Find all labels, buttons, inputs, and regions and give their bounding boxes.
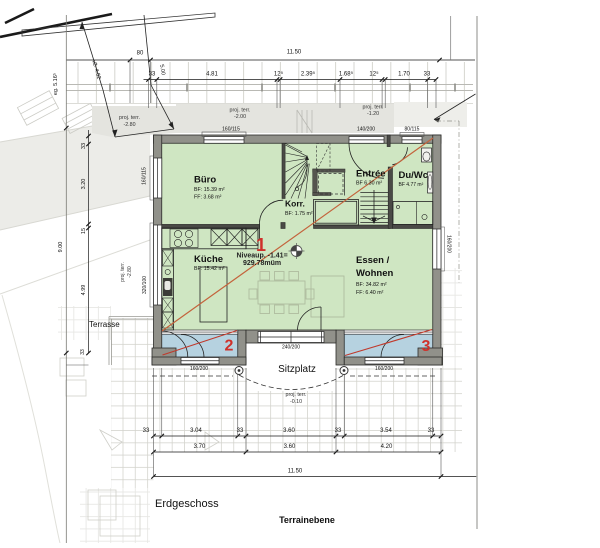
- svg-text:BF 4.77 m²: BF 4.77 m²: [399, 182, 424, 188]
- svg-text:-2.80: -2.80: [123, 122, 135, 128]
- svg-text:140/200: 140/200: [357, 127, 375, 133]
- svg-text:proj. terr.: proj. terr.: [119, 115, 140, 121]
- svg-text:240/200: 240/200: [282, 345, 300, 351]
- svg-text:1.70: 1.70: [398, 72, 410, 78]
- svg-text:Wohnen: Wohnen: [356, 268, 393, 279]
- svg-text:2.39⁵: 2.39⁵: [301, 71, 316, 78]
- svg-text:4.81: 4.81: [206, 72, 218, 78]
- svg-text:160/115: 160/115: [222, 127, 240, 133]
- svg-text:proj. terr.: proj. terr.: [120, 262, 126, 282]
- svg-text:3.54: 3.54: [380, 428, 392, 434]
- svg-text:929.78müm: 929.78müm: [243, 260, 281, 267]
- svg-text:-2.80: -2.80: [127, 266, 133, 278]
- svg-text:11.50: 11.50: [288, 469, 303, 475]
- svg-text:33: 33: [81, 143, 87, 149]
- svg-text:Küche: Küche: [194, 254, 223, 265]
- svg-text:12⁵: 12⁵: [369, 71, 379, 78]
- svg-text:BF: 15.39 m²: BF: 15.39 m²: [194, 187, 225, 193]
- svg-text:-0.10: -0.10: [290, 399, 302, 405]
- svg-text:eg. 5.16⁵: eg. 5.16⁵: [52, 73, 59, 95]
- svg-text:Korr.: Korr.: [285, 199, 305, 209]
- svg-text:Entrée: Entrée: [356, 169, 386, 180]
- svg-text:Erdgeschoss: Erdgeschoss: [155, 498, 219, 510]
- svg-text:80: 80: [137, 51, 144, 57]
- svg-text:proj. terr.: proj. terr.: [363, 105, 384, 111]
- svg-text:33: 33: [424, 72, 431, 78]
- svg-text:3.70: 3.70: [194, 444, 206, 450]
- svg-text:FF: 6.40 m²: FF: 6.40 m²: [356, 290, 384, 296]
- svg-text:1.68⁵: 1.68⁵: [339, 71, 354, 78]
- svg-text:3.60: 3.60: [283, 428, 295, 434]
- svg-text:33: 33: [149, 72, 156, 78]
- svg-text:33: 33: [428, 428, 435, 434]
- svg-text:-1.20: -1.20: [367, 111, 379, 117]
- svg-text:9.00: 9.00: [58, 242, 64, 253]
- svg-text:3.04: 3.04: [190, 428, 202, 434]
- svg-text:12⁵: 12⁵: [274, 71, 284, 78]
- svg-text:BF: 34.82 m²: BF: 34.82 m²: [356, 282, 387, 288]
- svg-text:160/200: 160/200: [375, 366, 393, 372]
- svg-text:160/200: 160/200: [190, 366, 208, 372]
- svg-text:15: 15: [81, 228, 87, 234]
- svg-text:FF: 3.68 m²: FF: 3.68 m²: [194, 195, 222, 201]
- svg-text:3.60: 3.60: [284, 444, 296, 450]
- svg-text:BF 6.30 m²: BF 6.30 m²: [356, 181, 382, 187]
- svg-text:2: 2: [225, 338, 234, 355]
- svg-text:Terrainebene: Terrainebene: [279, 515, 335, 525]
- svg-text:proj. terr.: proj. terr.: [286, 392, 307, 398]
- svg-text:11.50: 11.50: [287, 50, 302, 56]
- svg-text:4.20: 4.20: [381, 444, 393, 450]
- svg-text:160/115: 160/115: [142, 167, 148, 185]
- svg-text:Terrasse: Terrasse: [89, 320, 120, 329]
- svg-text:4.99: 4.99: [81, 285, 87, 296]
- svg-text:-2.00: -2.00: [234, 114, 246, 120]
- svg-text:Du/Wc: Du/Wc: [399, 170, 429, 181]
- svg-text:33: 33: [143, 428, 150, 434]
- svg-text:Niveaup. -1.41=: Niveaup. -1.41=: [237, 253, 288, 260]
- svg-text:BF: 1.75 m²: BF: 1.75 m²: [285, 211, 313, 217]
- svg-text:3.20: 3.20: [81, 179, 87, 190]
- svg-text:Essen /: Essen /: [356, 255, 390, 266]
- svg-text:Büro: Büro: [194, 175, 216, 186]
- svg-text:33: 33: [80, 349, 86, 355]
- svg-text:proj. terr.: proj. terr.: [230, 108, 251, 114]
- svg-text:BF: 15.42 m²: BF: 15.42 m²: [194, 266, 225, 272]
- svg-text:80/115: 80/115: [405, 127, 420, 133]
- svg-text:320/100: 320/100: [142, 276, 148, 294]
- svg-text:160/200: 160/200: [446, 235, 452, 253]
- svg-text:3: 3: [422, 338, 431, 355]
- svg-text:Sitzplatz: Sitzplatz: [278, 364, 316, 375]
